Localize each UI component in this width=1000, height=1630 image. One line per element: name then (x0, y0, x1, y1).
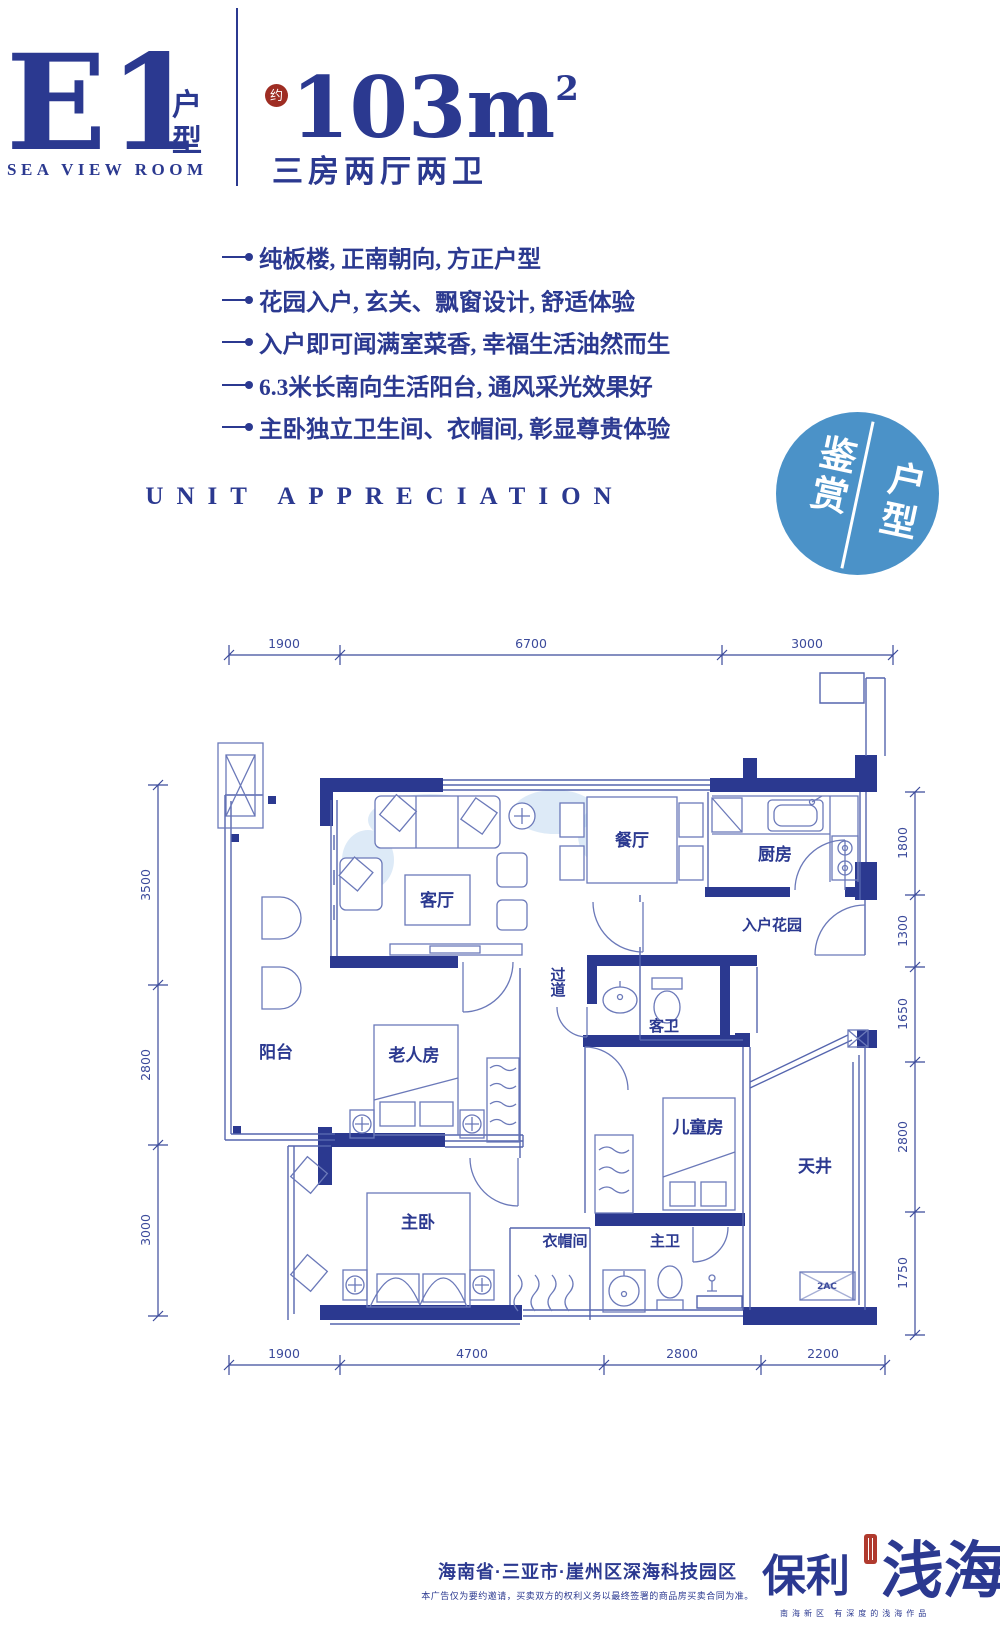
arrow-bullet-icon (222, 299, 246, 301)
dim-left-1: 3500 (138, 869, 153, 901)
room-label-patio: 天井 (798, 1156, 832, 1176)
section-title-en: UNIT APPRECIATION (0, 483, 770, 511)
dim-top-2: 6700 (515, 636, 547, 651)
room-label-elder-room: 老人房 (388, 1045, 440, 1065)
feature-text: 入户即可闻满室菜香, 幸福生活油然而生 (259, 325, 670, 359)
unit-type-label: 户型 (170, 88, 204, 160)
feature-text: 主卧独立卫生间、衣帽间, 彰显尊贵体验 (259, 410, 670, 444)
room-label-master-bath: 主卫 (650, 1232, 680, 1250)
dim-left-3: 3000 (138, 1214, 153, 1246)
dim-bottom-3: 2800 (666, 1346, 698, 1361)
room-label-balcony: 阳台 (259, 1042, 293, 1062)
side-table (497, 900, 527, 930)
room-label-guest-bath: 客卫 (648, 1017, 679, 1035)
header-divider (236, 8, 238, 186)
dim-right-5: 1750 (895, 1257, 910, 1289)
floor-plan: 1900 6700 3000 1900 4700 2800 2200 3500 … (0, 610, 1000, 1390)
feature-item: 纯板楼, 正南朝向, 方正户型 (222, 236, 670, 279)
room-label-kitchen: 厨房 (758, 844, 792, 864)
dim-right-4: 2800 (895, 1121, 910, 1153)
brand-tagline: 南海新区 有深度的浅海作品 (780, 1608, 930, 1619)
dim-right-2: 1300 (895, 915, 910, 947)
balcony-chairs (262, 897, 301, 1009)
room-label-entry-garden: 入户花园 (742, 916, 802, 934)
room-label-cloakroom: 衣帽间 (542, 1232, 587, 1250)
room-label-living: 客厅 (419, 890, 454, 910)
cloakroom-hangers (514, 1275, 573, 1311)
approx-seal: 约 (265, 84, 288, 107)
room-label-master-bedroom: 主卧 (401, 1212, 435, 1232)
unit-subtitle-en: SEA VIEW ROOM (7, 160, 208, 180)
room-label-dining: 餐厅 (615, 830, 649, 850)
room-label-corridor: 过道 (549, 966, 566, 997)
dimension-lines (148, 645, 925, 1375)
dim-bottom-4: 2200 (807, 1346, 839, 1361)
unit-appreciation-badge: 鉴赏 户型 (776, 412, 939, 575)
ac-label: 2AC (817, 1282, 837, 1292)
feature-list: 纯板楼, 正南朝向, 方正户型 花园入户, 玄关、飘窗设计, 舒适体验 入户即可… (222, 236, 670, 449)
brand-name-poly: 保利 (762, 1540, 850, 1604)
feature-text: 纯板楼, 正南朝向, 方正户型 (259, 240, 541, 274)
dim-top-3: 3000 (791, 636, 823, 651)
dim-bottom-2: 4700 (456, 1346, 488, 1361)
badge-text-right: 户型 (864, 455, 934, 546)
kitchen-counter (712, 796, 858, 882)
dim-right-3: 1650 (895, 998, 910, 1030)
brand-seal-icon (864, 1534, 877, 1564)
arrow-bullet-icon (222, 256, 246, 258)
area-number: 103m (291, 58, 555, 157)
dim-left-2: 2800 (138, 1049, 153, 1081)
tv-console (390, 944, 522, 955)
kids-bed (595, 1098, 735, 1213)
feature-item: 花园入户, 玄关、飘窗设计, 舒适体验 (222, 279, 670, 322)
brand-name-qianhai: 浅海 (879, 1520, 1000, 1610)
guest-bath-fixtures (603, 978, 682, 1023)
arrow-bullet-icon (222, 384, 246, 386)
dim-right-1: 1800 (895, 827, 910, 859)
layout-label: 三房两厅两卫 (272, 146, 488, 191)
dimension-labels: 1900 6700 3000 1900 4700 2800 2200 3500 … (138, 636, 910, 1361)
arrow-bullet-icon (222, 341, 246, 343)
dim-bottom-1: 1900 (268, 1346, 300, 1361)
area-value: 103m2 (291, 66, 579, 150)
feature-item: 主卧独立卫生间、衣帽间, 彰显尊贵体验 (222, 406, 670, 449)
room-label-kids-room: 儿童房 (672, 1117, 724, 1137)
thin-walls-windows (225, 673, 885, 1324)
area-superscript: 2 (555, 69, 579, 109)
elder-bed (350, 1025, 519, 1142)
feature-text: 6.3米长南向生活阳台, 通风采光效果好 (259, 368, 653, 402)
dim-top-1: 1900 (268, 636, 300, 651)
master-bath-fixtures (603, 1266, 717, 1312)
arrow-bullet-icon (222, 426, 246, 428)
feature-item: 6.3米长南向生活阳台, 通风采光效果好 (222, 364, 670, 407)
feature-text: 花园入户, 玄关、飘窗设计, 舒适体验 (259, 283, 635, 317)
feature-item: 入户即可闻满室菜香, 幸福生活油然而生 (222, 321, 670, 364)
side-table (497, 853, 527, 887)
brand-logo: 保利 浅海 南海新区 有深度的浅海作品 (762, 1520, 1000, 1620)
